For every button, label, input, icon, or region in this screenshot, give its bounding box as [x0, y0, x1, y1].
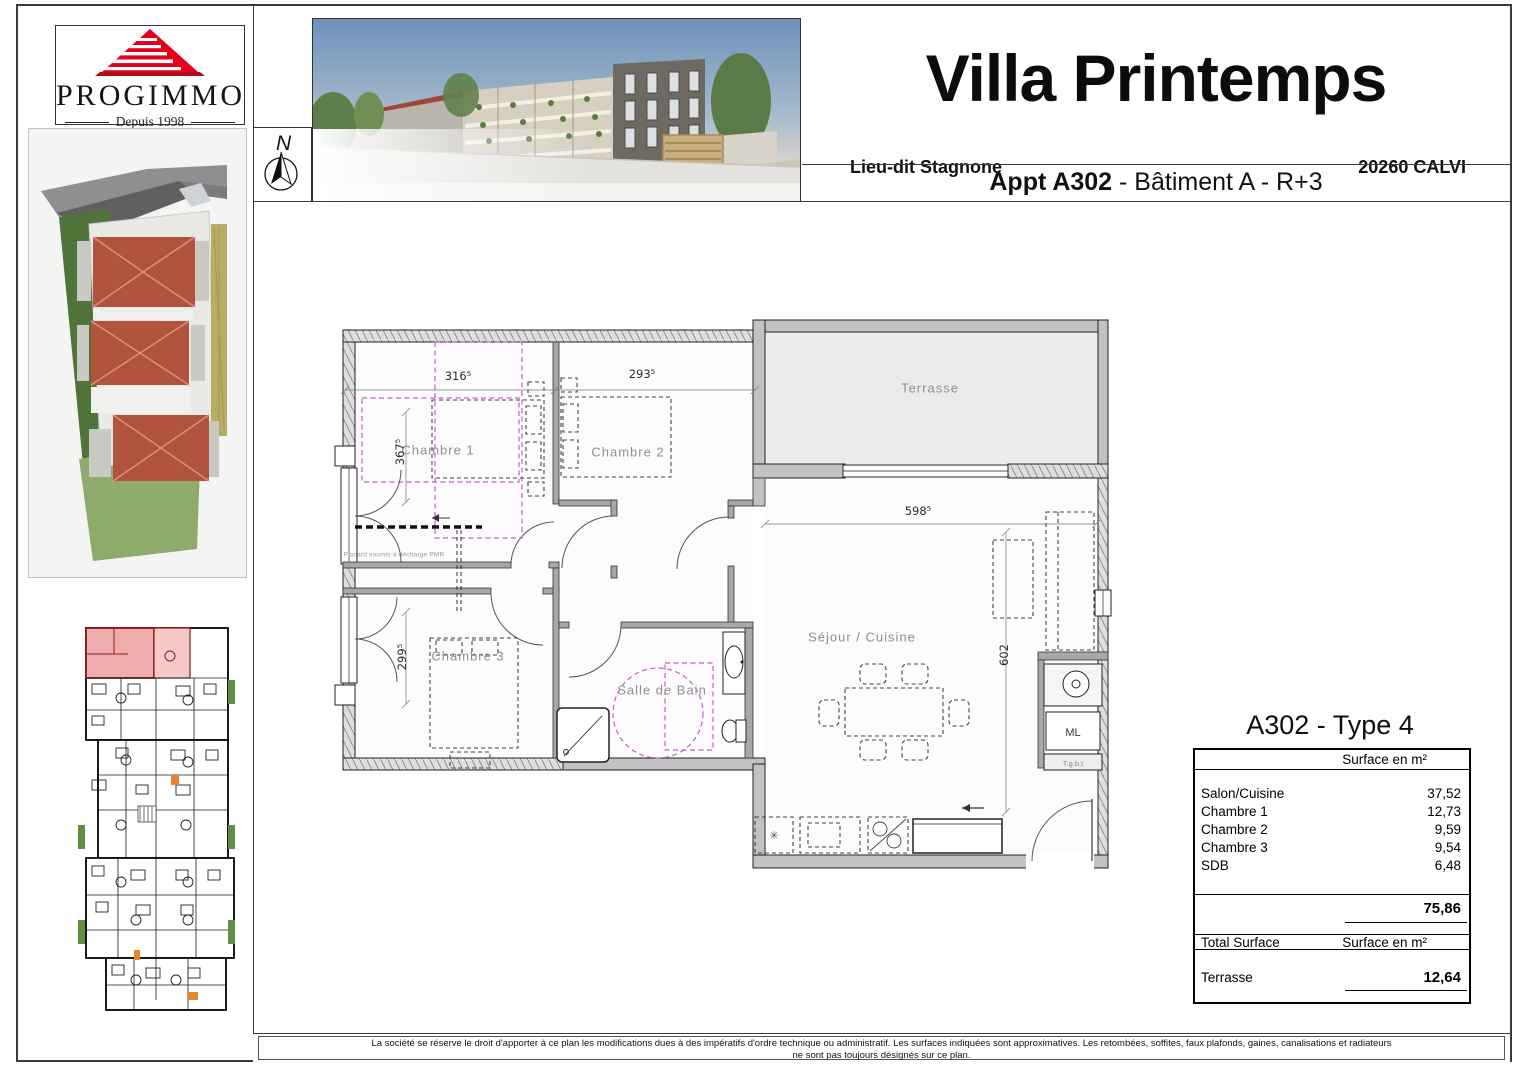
row-label: Salon/Cuisine	[1201, 786, 1284, 801]
dim-chambre1-width: 316⁵	[445, 369, 472, 383]
terrace-value: 12,64	[1423, 969, 1461, 986]
dim-sejour-width: 598⁵	[905, 504, 932, 518]
title-divider	[802, 164, 1510, 165]
subtotal-value: 75,86	[1423, 900, 1461, 917]
agency-logo: PROGIMMO Depuis 1998	[55, 25, 245, 125]
surface-table-title: A302 - Type 4	[1190, 710, 1470, 741]
agency-name: PROGIMMO	[56, 79, 244, 113]
apartment-number: Appt A302	[989, 168, 1112, 196]
tagline-rule-left	[65, 122, 109, 123]
total-separator-bottom	[1195, 949, 1469, 950]
floor-plan-drawing: ✳ ML T.g.b.t	[332, 312, 1122, 877]
row-value: 6,48	[1435, 858, 1461, 873]
table-row: SDB 6,48	[1195, 858, 1469, 876]
dim-chambre2-width: 293⁵	[629, 367, 656, 381]
row-label: Chambre 2	[1201, 822, 1268, 837]
terrace-label: Terrasse	[1201, 970, 1253, 985]
floor-plan: ✳ ML T.g.b.t	[332, 312, 1122, 877]
footer-disclaimer-box: La société se réserve le droit d'apporte…	[258, 1036, 1505, 1060]
building-render-photo	[312, 18, 801, 202]
row-value: 9,54	[1435, 840, 1461, 855]
table-row: Salon/Cuisine 37,52	[1195, 786, 1469, 804]
disclaimer-line-1: La société se réserve le droit d'apporte…	[259, 1038, 1504, 1050]
subtotal-separator	[1195, 894, 1469, 895]
key-plan-drawing	[76, 620, 242, 1016]
row-value: 37,52	[1427, 786, 1461, 801]
room-label-chambre1: Chambre 1	[401, 443, 474, 458]
header-bottom-line	[253, 201, 1512, 202]
terrace-underline	[1345, 990, 1467, 991]
surface-col-header: Surface en m²	[1342, 752, 1427, 767]
site-plan-drawing	[29, 129, 246, 577]
terrace-row: Terrasse 12,64	[1195, 970, 1469, 990]
disclaimer-line-2: ne sont pas toujours désignés sur ce pla…	[259, 1050, 1504, 1062]
plan-sheet: PROGIMMO Depuis 1998	[0, 0, 1528, 1080]
svg-text:✳: ✳	[769, 830, 778, 842]
subtotal-underline	[1345, 922, 1467, 923]
tgbt-label: T.g.b.t	[1063, 759, 1084, 768]
surface-col-header-row: Surface en m²	[1195, 750, 1469, 770]
ml-label: ML	[1065, 727, 1080, 739]
key-plan-thumbnail	[76, 620, 242, 1016]
room-label-terrasse: Terrasse	[901, 381, 959, 396]
tagline-rule-right	[191, 122, 235, 123]
table-row: Chambre 1 12,73	[1195, 804, 1469, 822]
row-label: SDB	[1201, 858, 1229, 873]
room-label-chambre3: Chambre 3	[431, 649, 504, 664]
placard-pmr-note: Placard soumis à décharge PMR	[344, 552, 445, 559]
site-plan-thumbnail	[28, 128, 247, 578]
room-label-chambre2: Chambre 2	[591, 445, 664, 460]
north-arrow-icon: N	[254, 128, 311, 201]
surface-table: Surface en m² Salon/Cuisine 37,52 Chambr…	[1193, 748, 1471, 1004]
apartment-subtitle: Appt A302 - Bâtiment A - R+3	[802, 168, 1510, 197]
total-label: Total Surface	[1201, 935, 1280, 950]
room-label-salle-de-bain: Salle de Bain	[617, 683, 707, 698]
dim-sejour-depth: 602	[997, 644, 1011, 666]
progimmo-triangle-icon	[57, 26, 243, 76]
room-label-sejour-cuisine: Séjour / Cuisine	[808, 630, 916, 645]
row-value: 9,59	[1435, 822, 1461, 837]
row-value: 12,73	[1427, 804, 1461, 819]
table-row: Chambre 2 9,59	[1195, 822, 1469, 840]
dim-chambre1-depth: 367⁵	[393, 439, 407, 466]
footer-disclaimer-strip: La société se réserve le droit d'apporte…	[253, 1033, 1510, 1062]
north-label: N	[276, 132, 292, 155]
row-label: Chambre 3	[1201, 840, 1268, 855]
table-row: Chambre 3 9,54	[1195, 840, 1469, 858]
dim-chambre3-depth: 299⁵	[395, 644, 409, 671]
project-title: Villa Printemps	[802, 40, 1510, 116]
total-header-row: Total Surface Surface en m²	[1195, 935, 1469, 949]
title-block: Villa Printemps Lieu-dit Stagnone 20260 …	[802, 18, 1510, 202]
highlighted-unit-a302	[86, 628, 154, 678]
north-compass: N	[253, 127, 312, 202]
row-label: Chambre 1	[1201, 804, 1268, 819]
apartment-building: - Bâtiment A - R+3	[1112, 168, 1323, 196]
building-render-drawing	[313, 19, 800, 201]
total-col-header: Surface en m²	[1342, 935, 1427, 950]
